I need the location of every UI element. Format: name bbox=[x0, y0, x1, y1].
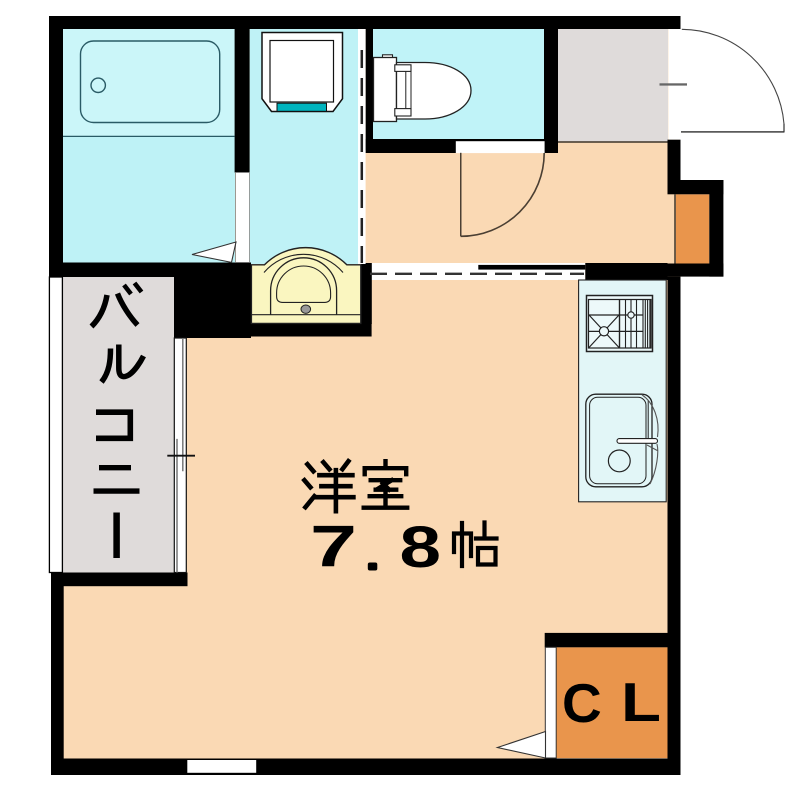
svg-text:L: L bbox=[621, 671, 661, 733]
svg-text:8: 8 bbox=[400, 515, 442, 580]
svg-text:C: C bbox=[562, 672, 602, 734]
svg-text:7: 7 bbox=[310, 514, 357, 579]
